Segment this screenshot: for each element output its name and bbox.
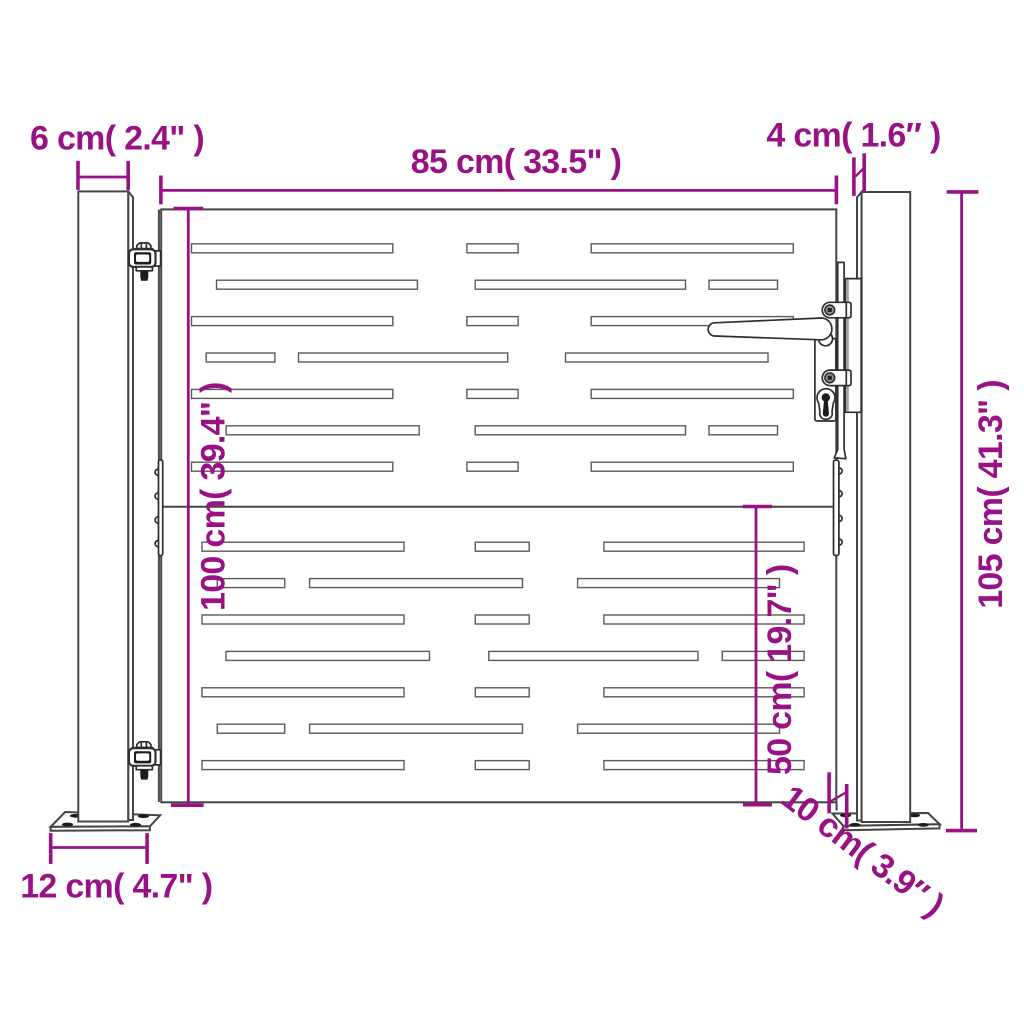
svg-text:4 cm( 1.6″ ): 4 cm( 1.6″ ) bbox=[766, 117, 940, 155]
svg-text:50 cm( 19.7" ): 50 cm( 19.7" ) bbox=[761, 565, 799, 775]
svg-text:105 cm( 41.3" ): 105 cm( 41.3" ) bbox=[972, 380, 1010, 609]
svg-text:85 cm( 33.5" ): 85 cm( 33.5" ) bbox=[411, 143, 621, 181]
svg-text:6 cm( 2.4" ): 6 cm( 2.4" ) bbox=[30, 119, 204, 157]
svg-text:12 cm( 4.7" ): 12 cm( 4.7" ) bbox=[20, 868, 212, 906]
svg-text:100 cm( 39.4" ): 100 cm( 39.4" ) bbox=[194, 382, 232, 611]
